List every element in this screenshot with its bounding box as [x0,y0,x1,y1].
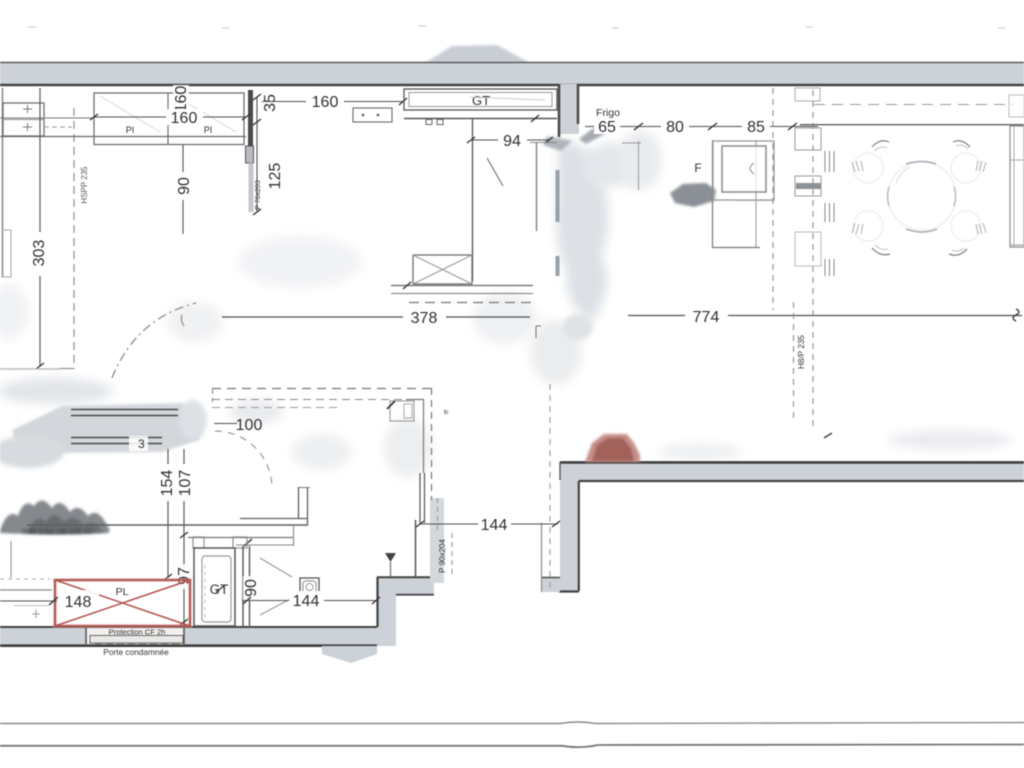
svg-text:774: 774 [693,309,720,326]
svg-text:HSPP 235: HSPP 235 [80,166,89,204]
svg-text:3: 3 [138,437,145,451]
svg-text:160: 160 [312,94,339,111]
svg-text:90: 90 [176,177,193,195]
svg-text:144: 144 [481,517,508,534]
svg-text:F: F [694,161,701,175]
svg-text:160: 160 [173,86,190,113]
svg-text:378: 378 [411,310,438,327]
svg-text:PL: PL [116,586,129,598]
svg-text:PI: PI [126,125,135,135]
svg-text:303: 303 [31,240,48,267]
svg-text:125: 125 [267,163,284,190]
svg-text:94: 94 [503,133,521,150]
svg-text:65: 65 [598,119,616,136]
svg-text:Salle d eau cab 4,05 m2: Salle d eau cab 4,05 m2 [22,528,92,535]
svg-text:154: 154 [159,470,176,497]
svg-text:100: 100 [236,417,263,434]
svg-text:148: 148 [65,594,92,611]
svg-text:b:: b: [444,409,450,416]
svg-text:107: 107 [177,470,194,497]
svg-text:P 90x204: P 90x204 [438,539,447,573]
svg-text:144: 144 [293,593,320,610]
svg-text:160: 160 [171,110,198,127]
svg-text:P 76x203: P 76x203 [255,180,262,210]
svg-text:90: 90 [243,579,260,597]
svg-text:GT: GT [472,93,490,108]
svg-text:85: 85 [747,119,765,136]
svg-text:H8/P 235: H8/P 235 [797,335,806,369]
svg-text:PI: PI [204,125,213,135]
svg-text:80: 80 [666,119,684,136]
svg-text:35: 35 [262,94,279,112]
svg-text:Porte condamnée: Porte condamnée [103,647,169,657]
svg-text:Frigo: Frigo [596,107,620,119]
